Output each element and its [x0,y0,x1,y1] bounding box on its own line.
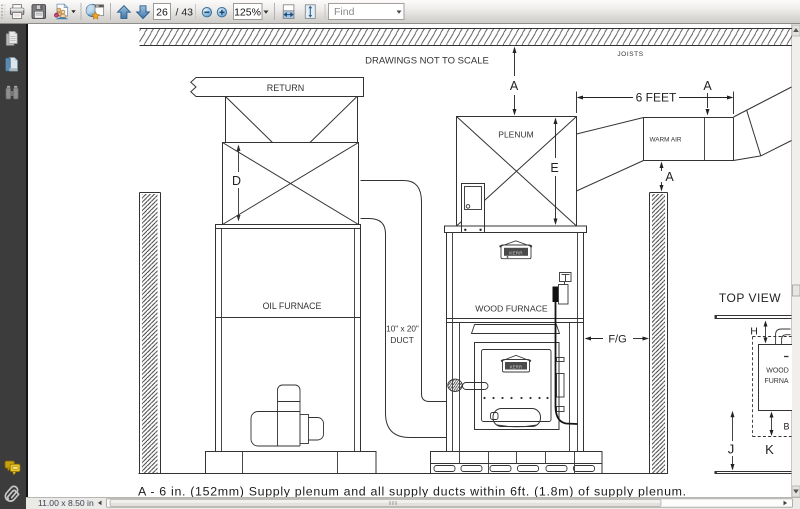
svg-text:K: K [765,442,774,457]
svg-text:/ 43: / 43 [176,6,194,18]
svg-text:26: 26 [156,6,168,18]
svg-text:JOISTS: JOISTS [617,51,643,58]
svg-text:WOOD FURNACE: WOOD FURNACE [475,304,548,314]
svg-text:FURNA: FURNA [764,378,788,385]
svg-text:F/G: F/G [608,334,626,346]
svg-text:B: B [783,422,789,432]
svg-text:A - 6 in. (152mm) Supply plenu: A - 6 in. (152mm) Supply plenum and all … [138,484,687,497]
svg-text:11.00 x 8.50 in: 11.00 x 8.50 in [38,498,94,508]
svg-text:DRAWINGS NOT TO SCALE: DRAWINGS NOT TO SCALE [365,56,489,67]
svg-text:TOP VIEW: TOP VIEW [719,291,781,305]
svg-text:A: A [510,79,519,93]
svg-text:Find: Find [334,6,355,18]
svg-text:RETURN: RETURN [267,83,305,93]
svg-text:A: A [703,79,712,93]
svg-text:D: D [232,174,241,188]
svg-text:H: H [750,326,758,338]
svg-text:A: A [665,170,674,184]
svg-text:WOOD: WOOD [766,367,789,374]
svg-text:DUCT: DUCT [390,335,414,345]
svg-text:10" x 20": 10" x 20" [386,324,419,333]
svg-text:PLENUM: PLENUM [498,130,533,140]
svg-text:KERR: KERR [510,364,522,369]
svg-text:E: E [550,161,558,175]
svg-text:OIL FURNACE: OIL FURNACE [263,301,322,311]
svg-text:6 FEET: 6 FEET [636,91,677,105]
svg-text:125%: 125% [234,6,261,18]
svg-text:KERR: KERR [509,251,523,256]
svg-text:WARM AIR: WARM AIR [649,136,681,143]
svg-text:J: J [728,442,735,457]
